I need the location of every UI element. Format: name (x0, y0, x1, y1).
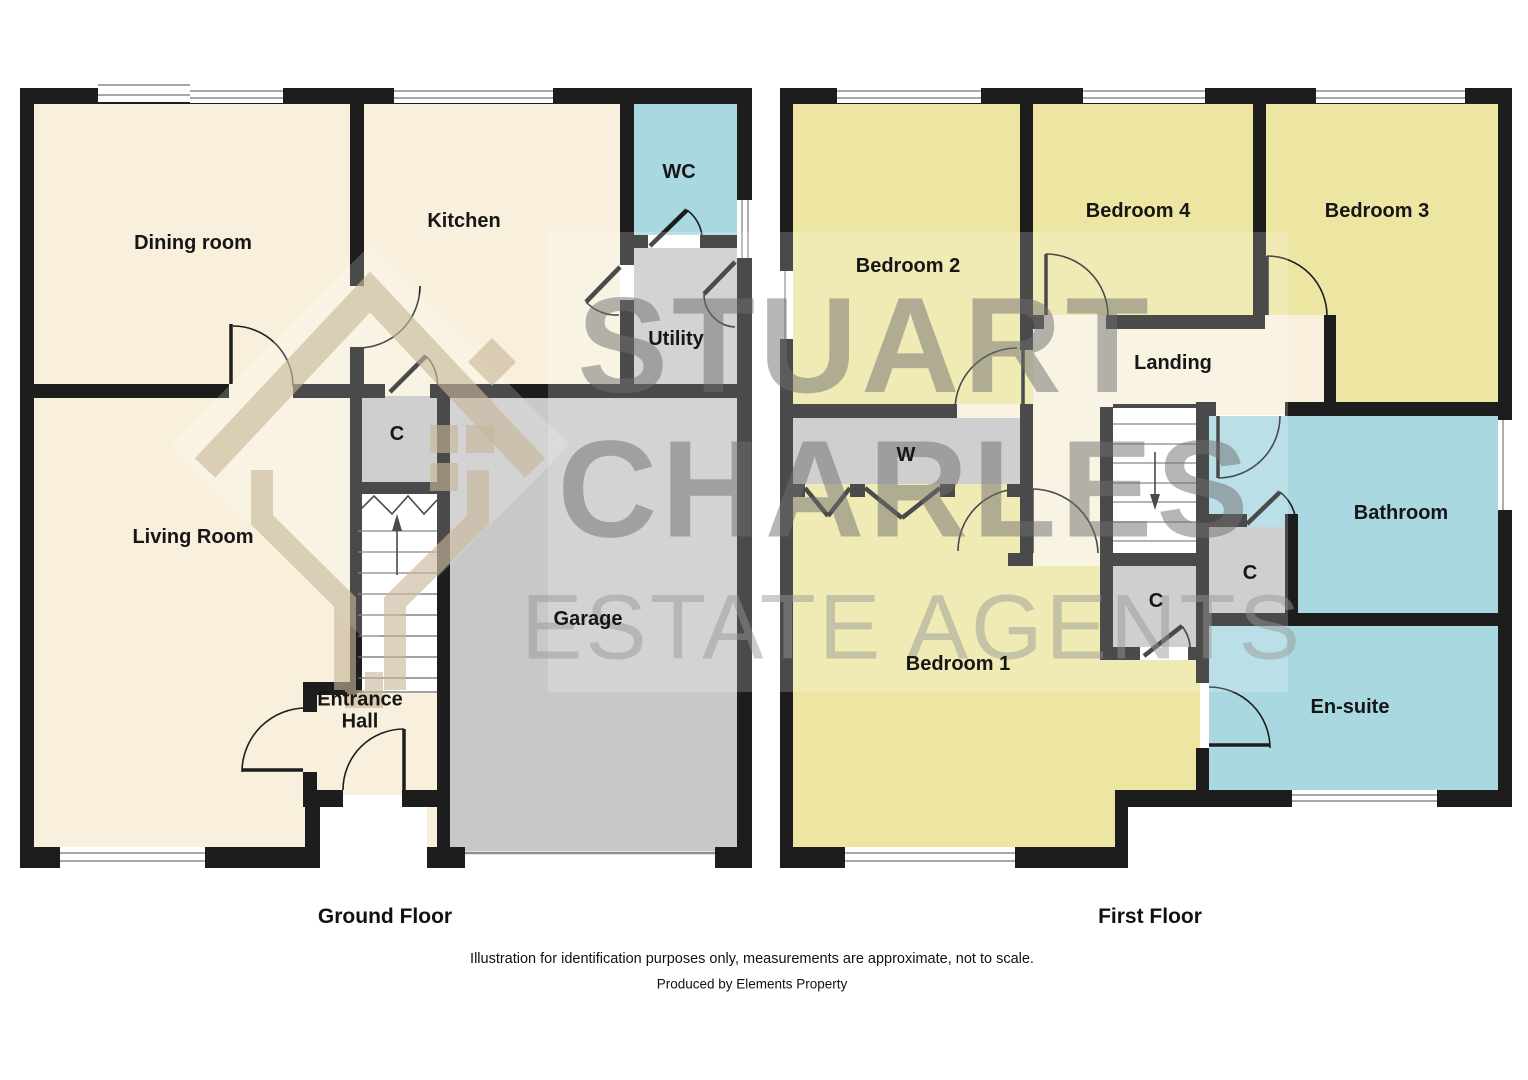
label-living-room: Living Room (132, 526, 253, 548)
label-garage: Garage (554, 608, 623, 630)
label-cupboard-gf: C (390, 423, 404, 445)
producer-text: Produced by Elements Property (657, 977, 848, 992)
floorplan-page: STUART CHARLES ESTATE AGENTS Dining room… (0, 0, 1528, 1080)
label-cupboard-bath: C (1243, 562, 1257, 584)
ground-floor-title: Ground Floor (318, 905, 452, 929)
watermark-logo (170, 232, 1288, 708)
room-bedroom3-lower (1324, 315, 1505, 415)
label-wc: WC (662, 161, 695, 183)
label-bathroom: Bathroom (1354, 502, 1448, 524)
label-dining-room: Dining room (134, 232, 252, 254)
label-landing: Landing (1134, 352, 1212, 374)
label-ensuite: En-suite (1311, 696, 1390, 718)
label-bedroom1: Bedroom 1 (906, 653, 1010, 675)
label-bedroom2: Bedroom 2 (856, 255, 960, 277)
label-bedroom3: Bedroom 3 (1325, 200, 1429, 222)
label-entrance-hall: Entrance Hall (301, 689, 419, 734)
first-floor-title: First Floor (1098, 905, 1202, 929)
label-cupboard-stairs: C (1149, 590, 1163, 612)
label-bedroom4: Bedroom 4 (1086, 200, 1190, 222)
disclaimer-text: Illustration for identification purposes… (470, 951, 1034, 967)
label-utility: Utility (648, 328, 704, 350)
label-kitchen: Kitchen (427, 210, 500, 232)
label-wardrobe: W (897, 444, 916, 466)
